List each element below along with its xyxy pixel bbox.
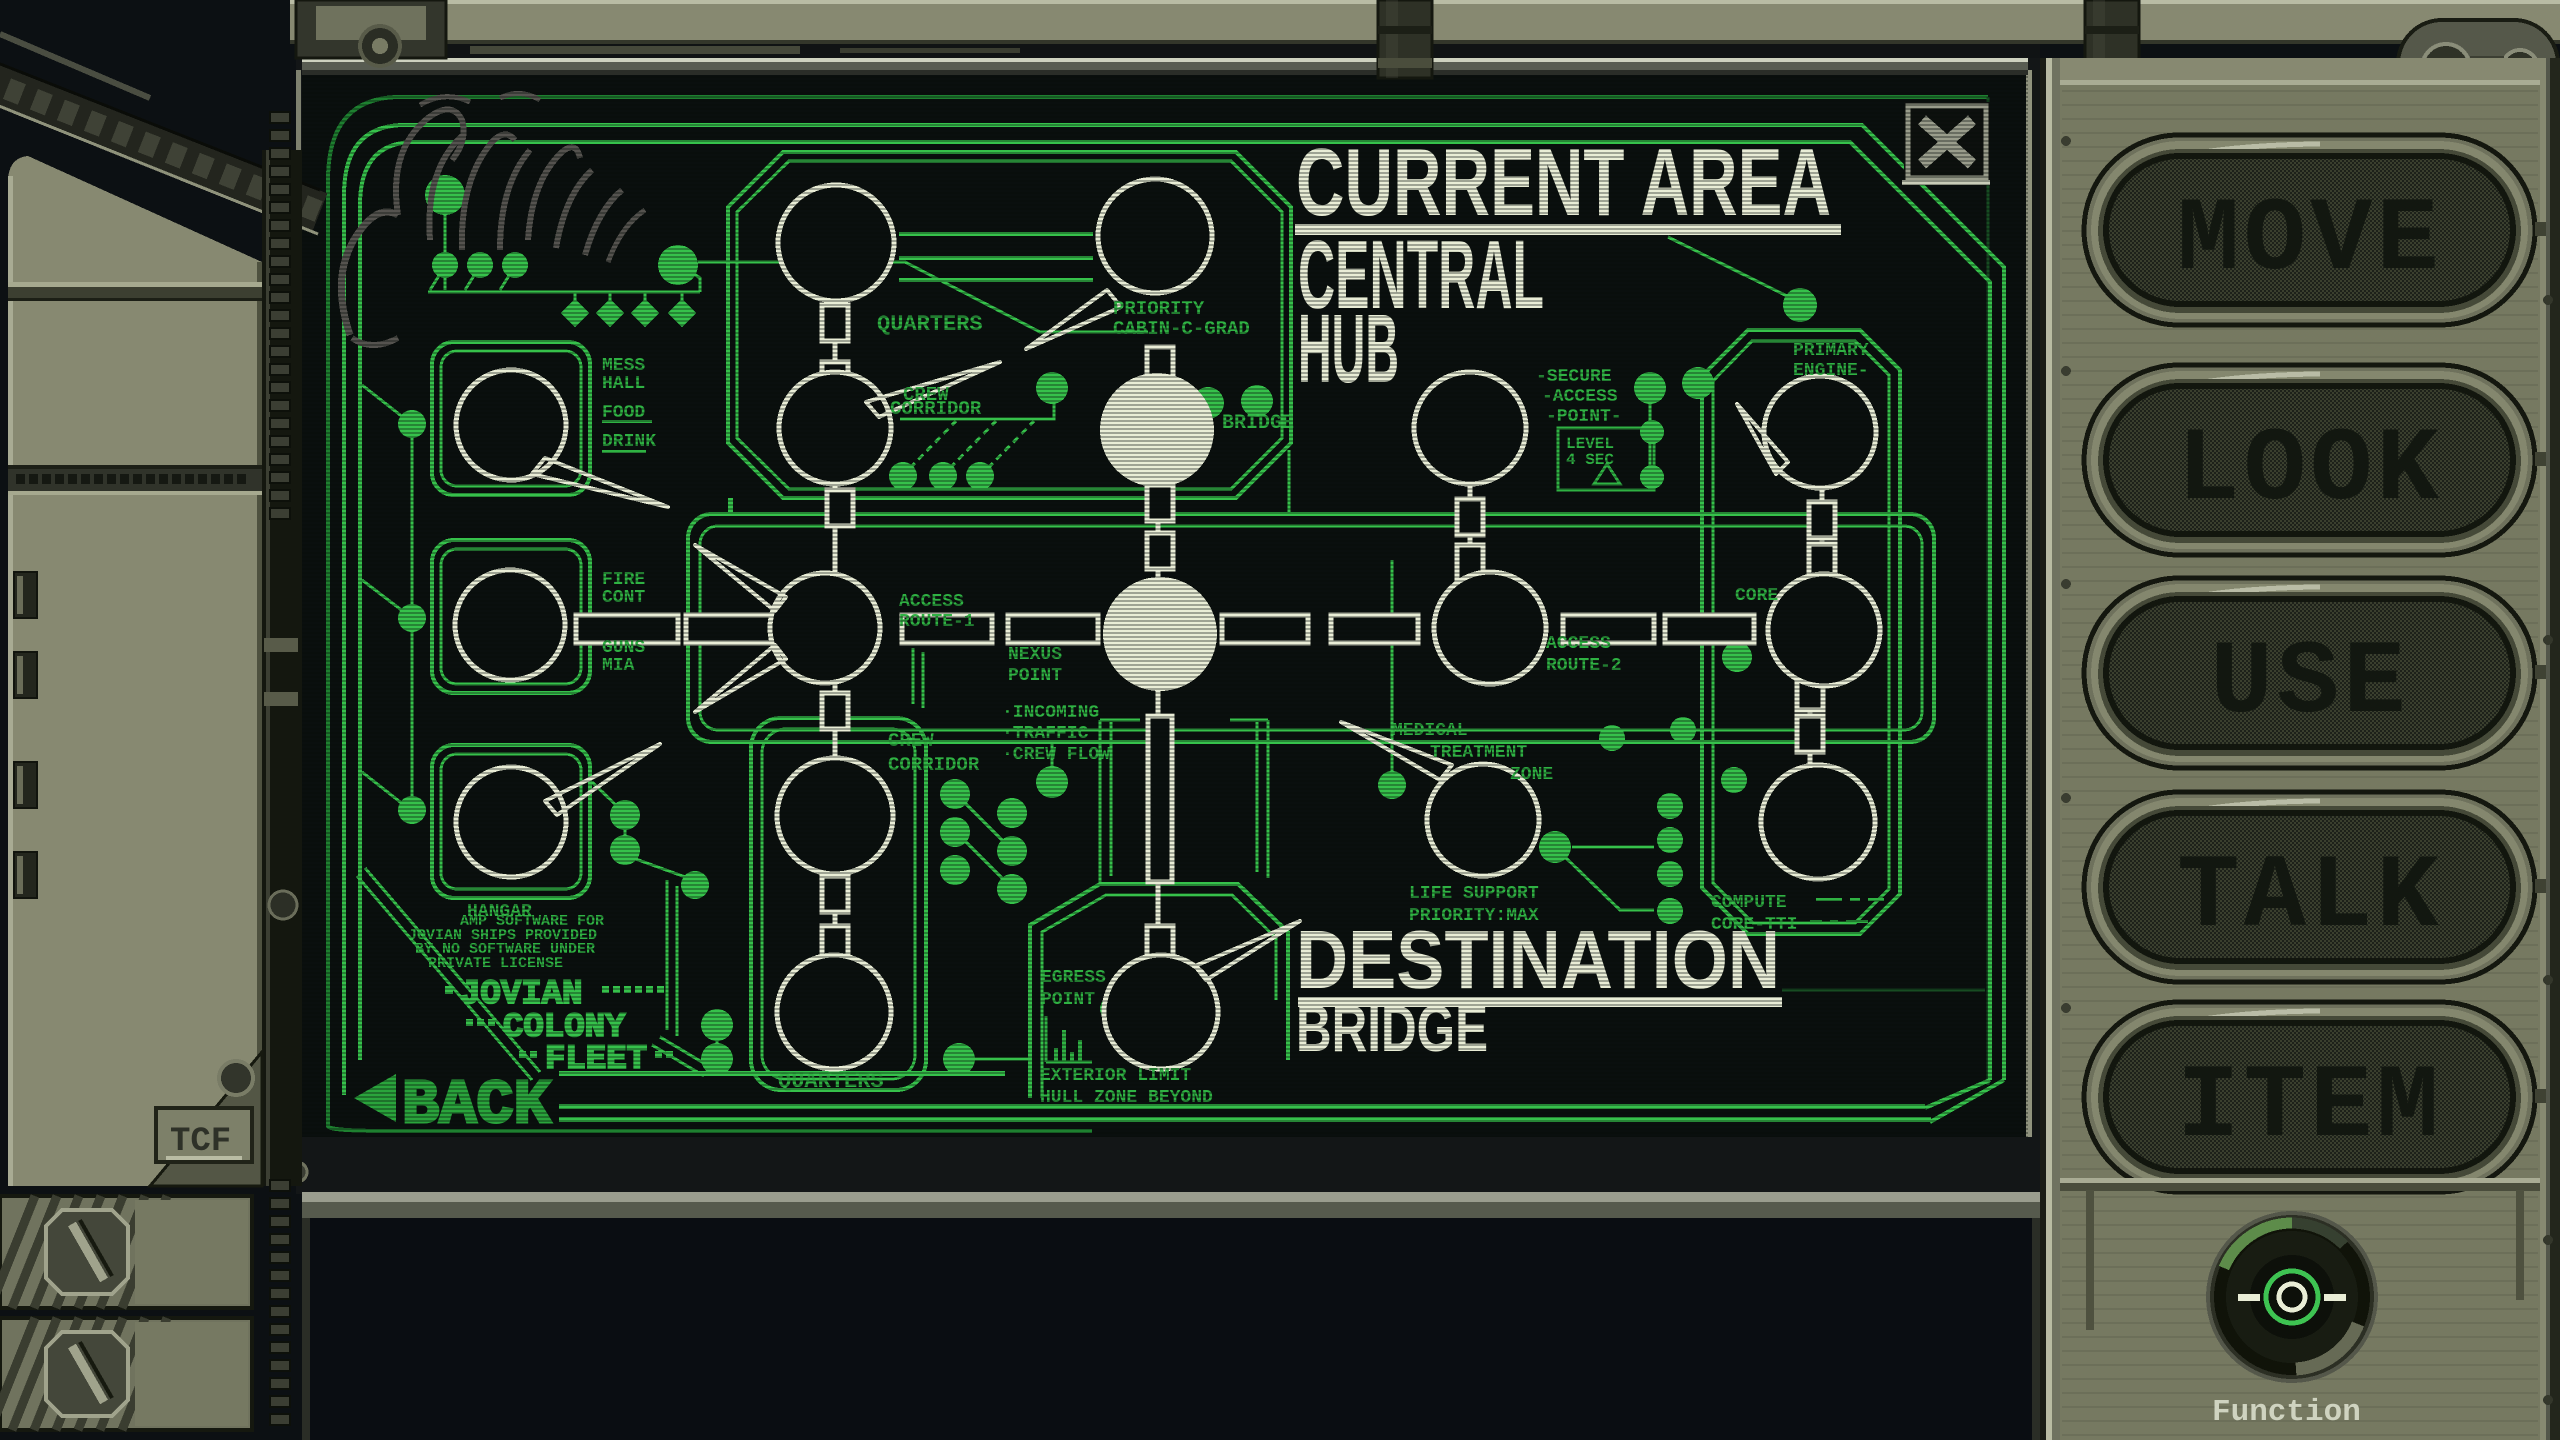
svg-text:USE: USE (2210, 625, 2409, 743)
svg-text:ITEM: ITEM (2177, 1049, 2443, 1167)
svg-text:Function: Function (2212, 1395, 2361, 1430)
svg-text:LOOK: LOOK (2177, 412, 2443, 530)
svg-text:TALK: TALK (2177, 839, 2443, 957)
svg-text:TCF: TCF (170, 1123, 231, 1161)
svg-text:MOVE: MOVE (2177, 182, 2443, 300)
